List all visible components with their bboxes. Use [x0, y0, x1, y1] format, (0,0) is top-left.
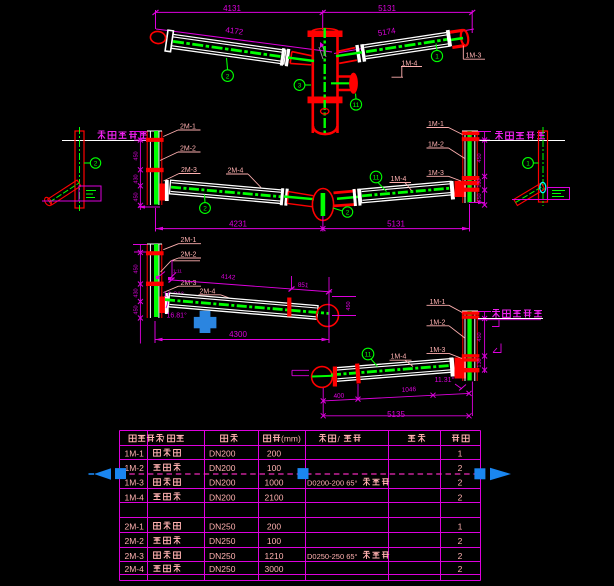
svg-text:2: 2 — [94, 161, 98, 168]
svg-text:2M-1: 2M-1 — [181, 237, 197, 244]
svg-text:5135: 5135 — [387, 410, 405, 419]
svg-text:2: 2 — [458, 463, 463, 473]
svg-text:2M-2: 2M-2 — [181, 251, 197, 258]
svg-text:1M-1: 1M-1 — [125, 448, 145, 458]
svg-text:450: 450 — [134, 151, 140, 160]
svg-text:2: 2 — [458, 551, 463, 561]
svg-text:3: 3 — [298, 83, 302, 90]
svg-text:1: 1 — [526, 161, 530, 168]
svg-text:11: 11 — [365, 352, 372, 359]
svg-text:2: 2 — [203, 206, 207, 213]
svg-text:1: 1 — [458, 448, 463, 458]
svg-text:4131: 4131 — [223, 4, 241, 13]
svg-text:400: 400 — [333, 393, 345, 401]
svg-text:DN250: DN250 — [209, 564, 236, 574]
svg-text:2M-3: 2M-3 — [181, 167, 197, 174]
svg-text:1M-3: 1M-3 — [125, 478, 145, 488]
svg-text:4142: 4142 — [221, 273, 236, 281]
svg-text:1M-1: 1M-1 — [430, 299, 446, 306]
svg-text:450: 450 — [477, 332, 483, 341]
svg-text:DN250: DN250 — [209, 536, 236, 546]
svg-text:1M-2: 1M-2 — [125, 463, 145, 473]
svg-text:1M-4: 1M-4 — [391, 176, 407, 183]
svg-text:130: 130 — [477, 178, 483, 187]
svg-text:1M-4: 1M-4 — [125, 492, 145, 502]
svg-text:5131: 5131 — [378, 4, 396, 13]
svg-text:450: 450 — [346, 301, 352, 310]
svg-text:DN250: DN250 — [209, 522, 236, 532]
svg-text:D0250-250 65°: D0250-250 65° — [307, 552, 358, 561]
svg-text:2: 2 — [458, 492, 463, 502]
svg-text:450: 450 — [477, 153, 483, 162]
svg-text:DN200: DN200 — [209, 478, 236, 488]
svg-text:100: 100 — [267, 463, 281, 473]
svg-text:1M-3: 1M-3 — [428, 170, 444, 177]
svg-text:1M-2: 1M-2 — [428, 141, 444, 148]
svg-text:450: 450 — [134, 305, 140, 314]
svg-text:200: 200 — [267, 522, 281, 532]
svg-text:3000: 3000 — [265, 564, 284, 574]
svg-text:200: 200 — [267, 448, 281, 458]
svg-text:1000: 1000 — [265, 478, 284, 488]
svg-text:2: 2 — [458, 478, 463, 488]
svg-text:1M-3: 1M-3 — [466, 53, 482, 60]
svg-text:100: 100 — [267, 536, 281, 546]
svg-text:450: 450 — [134, 264, 140, 273]
svg-text:1: 1 — [435, 54, 439, 61]
svg-text:DN200: DN200 — [209, 492, 236, 502]
svg-text:1M-2: 1M-2 — [430, 319, 446, 326]
svg-text:1210: 1210 — [265, 551, 284, 561]
svg-text:1:11: 1:11 — [173, 269, 182, 275]
svg-text:2100: 2100 — [265, 492, 284, 502]
svg-text:430: 430 — [134, 288, 140, 297]
svg-text:D0200-200 65°: D0200-200 65° — [307, 479, 358, 488]
svg-text:450: 450 — [134, 192, 140, 201]
svg-text:851: 851 — [297, 282, 309, 290]
svg-text:11: 11 — [353, 102, 360, 109]
svg-text:DN250: DN250 — [209, 551, 236, 561]
svg-text:4300: 4300 — [229, 330, 247, 339]
svg-text:1M-1: 1M-1 — [428, 121, 444, 128]
svg-text:2M-4: 2M-4 — [228, 168, 244, 175]
svg-text:2: 2 — [346, 210, 350, 217]
svg-text:1M-4: 1M-4 — [391, 354, 407, 361]
svg-text:1046: 1046 — [402, 386, 417, 394]
svg-text:430: 430 — [134, 174, 140, 183]
svg-text:16.81°: 16.81° — [167, 311, 188, 319]
svg-text:DN200: DN200 — [209, 463, 236, 473]
svg-text:2M-3: 2M-3 — [125, 551, 145, 561]
svg-text:11.31°: 11.31° — [435, 376, 455, 384]
svg-text:(mm): (mm) — [281, 434, 301, 444]
svg-text:5131: 5131 — [387, 220, 405, 229]
svg-text:2: 2 — [226, 73, 230, 80]
svg-text:DN200: DN200 — [209, 448, 236, 458]
svg-text:2M-1: 2M-1 — [125, 522, 145, 532]
svg-text:2M-4: 2M-4 — [125, 564, 145, 574]
svg-text:4231: 4231 — [229, 220, 247, 229]
svg-text:450: 450 — [477, 193, 483, 202]
svg-text:2: 2 — [458, 536, 463, 546]
svg-text:1: 1 — [458, 522, 463, 532]
svg-text:11: 11 — [373, 175, 380, 182]
svg-text:2M-2: 2M-2 — [125, 536, 145, 546]
svg-text:2: 2 — [458, 564, 463, 574]
svg-text:130: 130 — [477, 358, 483, 367]
